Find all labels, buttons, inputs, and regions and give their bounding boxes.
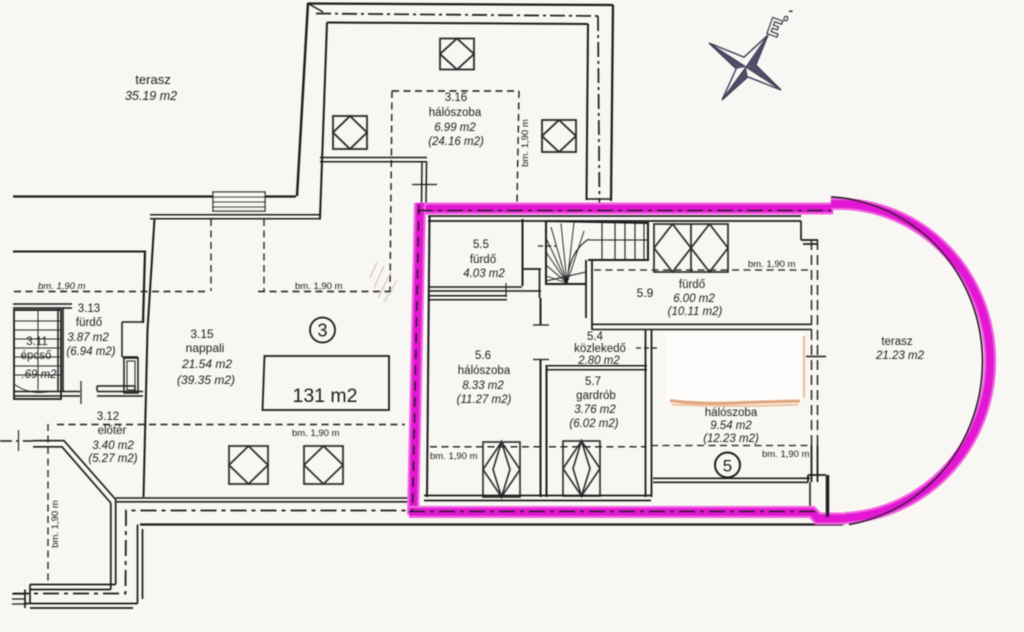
svg-text:3.11: 3.11 [26, 336, 48, 348]
svg-text:21.54 m2: 21.54 m2 [181, 357, 232, 371]
svg-text:épcső: épcső [21, 350, 52, 362]
svg-text:bm. 1,90 m: bm. 1,90 m [295, 281, 343, 292]
svg-text:6.99 m2: 6.99 m2 [434, 122, 476, 134]
svg-text:bm. 1,90 m: bm. 1,90 m [762, 449, 810, 460]
svg-text:3.87 m2: 3.87 m2 [67, 332, 109, 344]
svg-text:bm. 1,90 m: bm. 1,90 m [520, 119, 531, 167]
svg-text:3: 3 [317, 321, 327, 341]
svg-text:.69 m2: .69 m2 [21, 369, 57, 381]
svg-text:gardrób: gardrób [576, 390, 616, 402]
svg-text:3.40 m2: 3.40 m2 [92, 440, 134, 452]
svg-text:(24.16 m2): (24.16 m2) [428, 136, 484, 148]
svg-text:3.13: 3.13 [78, 303, 100, 315]
svg-text:(5.27 m2): (5.27 m2) [88, 453, 137, 465]
svg-text:5: 5 [723, 457, 732, 476]
svg-text:5.9: 5.9 [637, 286, 654, 300]
svg-text:közlekedő: közlekedő [574, 343, 626, 355]
svg-text:21.23 m2: 21.23 m2 [875, 350, 925, 362]
svg-text:(10.11 m2): (10.11 m2) [668, 306, 723, 318]
svg-text:131 m2: 131 m2 [292, 385, 357, 407]
svg-text:5.7: 5.7 [585, 376, 601, 388]
svg-text:hálószoba: hálószoba [705, 407, 758, 419]
svg-text:3.12: 3.12 [97, 411, 119, 423]
svg-text:bm. 1,90 m: bm. 1,90 m [38, 281, 86, 292]
svg-text:(39.35 m2): (39.35 m2) [177, 373, 235, 387]
svg-text:bm. 1,90 m: bm. 1,90 m [292, 428, 340, 439]
svg-text:5.5: 5.5 [473, 239, 489, 251]
svg-text:terasz: terasz [135, 72, 170, 87]
svg-text:hálószoba: hálószoba [429, 107, 482, 119]
svg-text:35.19 m2: 35.19 m2 [125, 89, 177, 103]
svg-text:5.6: 5.6 [475, 350, 491, 362]
svg-text:9.54 m2: 9.54 m2 [710, 420, 752, 432]
svg-text:(12.23 m2): (12.23 m2) [703, 433, 759, 445]
svg-text:fürdő: fürdő [76, 317, 102, 329]
svg-text:6.00 m2: 6.00 m2 [673, 293, 715, 305]
svg-text:(6.02 m2): (6.02 m2) [569, 418, 618, 430]
svg-text:nappali: nappali [186, 341, 225, 355]
svg-text:8.33 m2: 8.33 m2 [462, 380, 504, 392]
svg-text:3.16: 3.16 [445, 92, 467, 104]
svg-text:előtér: előtér [98, 425, 127, 437]
svg-text:bm. 1,90 m: bm. 1,90 m [748, 259, 796, 270]
svg-text:3.15: 3.15 [190, 327, 214, 341]
svg-text:fürdő: fürdő [470, 254, 496, 266]
svg-text:terasz: terasz [881, 336, 913, 348]
svg-text:fürdő: fürdő [679, 279, 705, 291]
svg-text:bm. 1,90 m: bm. 1,90 m [430, 451, 478, 462]
svg-text:bm. 1,90 m: bm. 1,90 m [50, 500, 61, 548]
svg-text:hálószoba: hálószoba [458, 365, 511, 377]
svg-text:3.76 m2: 3.76 m2 [574, 404, 616, 416]
svg-text:(11.27 m2): (11.27 m2) [457, 394, 512, 406]
svg-text:(6.94 m2): (6.94 m2) [66, 346, 115, 358]
svg-text:4.03 m2: 4.03 m2 [463, 268, 505, 280]
svg-text:5.4: 5.4 [587, 331, 604, 343]
